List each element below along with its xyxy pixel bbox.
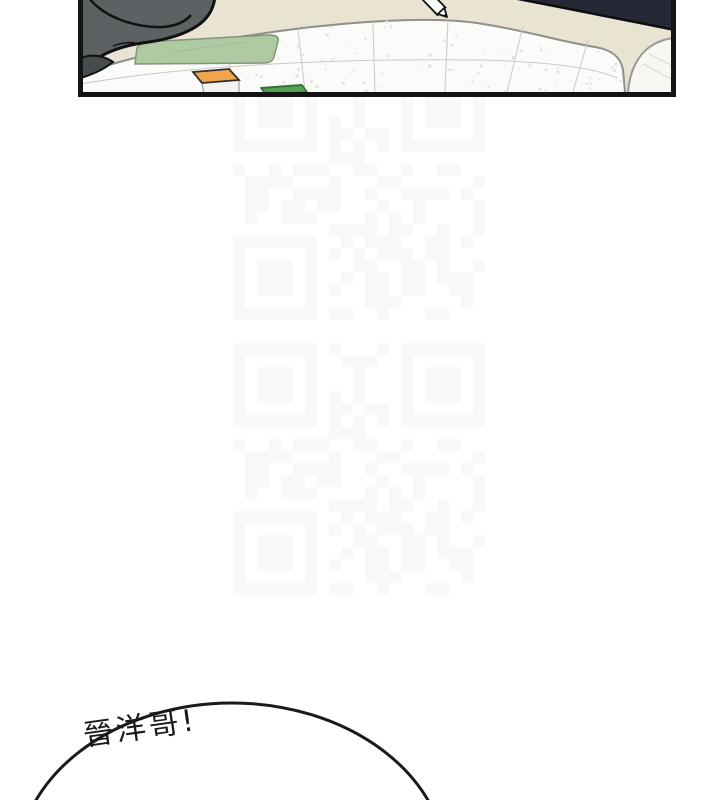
qr-watermark-bottom xyxy=(233,343,485,595)
comic-panel xyxy=(78,0,676,97)
qr-watermark-top xyxy=(233,68,485,320)
orange-sticky-note xyxy=(193,69,239,83)
comic-page: 晉洋哥! xyxy=(0,0,720,800)
panel-artwork xyxy=(83,0,671,92)
